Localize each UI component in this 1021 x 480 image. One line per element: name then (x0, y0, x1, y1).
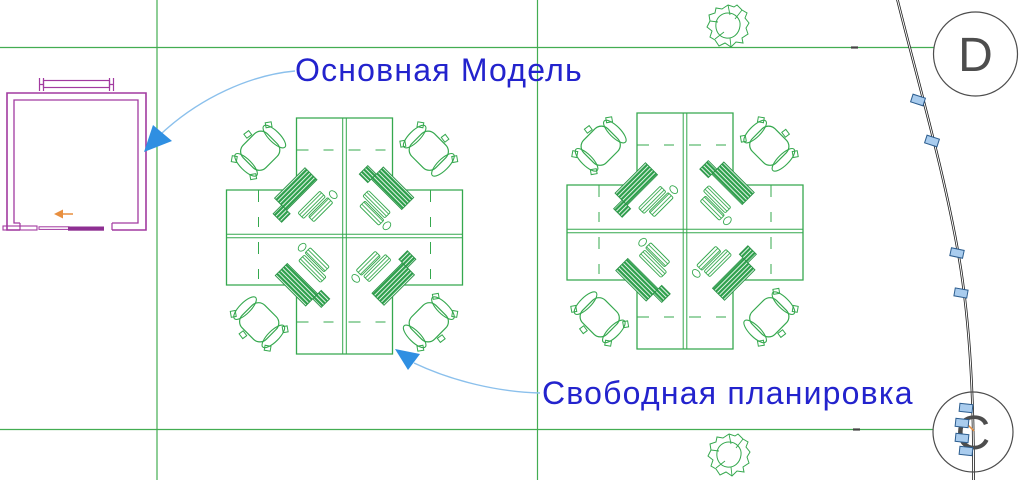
room-outer-wall[interactable] (7, 93, 146, 230)
tree-symbol-top[interactable] (707, 5, 749, 47)
annotation-main-model[interactable]: Основная Модель (295, 52, 583, 88)
leader-arrowhead (144, 125, 172, 152)
leader-line (162, 71, 295, 133)
tree-symbol-bottom[interactable] (708, 434, 750, 476)
leader-line (414, 363, 540, 393)
window-end-left (40, 78, 44, 91)
window-symbol[interactable] (44, 81, 110, 88)
floor-plan-svg: D C Основная Модель Свободная планировка (0, 0, 1021, 480)
door-panel-1[interactable] (39, 227, 69, 230)
window-end-right (110, 78, 114, 91)
leader-arrowhead (395, 349, 420, 370)
door-direction-arrow (54, 210, 73, 219)
grid-bubble-d-label: D (958, 29, 993, 82)
leader-main-model[interactable] (144, 71, 295, 152)
workstation-cluster-left[interactable] (223, 114, 465, 358)
leader-free-plan[interactable] (395, 349, 540, 393)
grid-bubble-d[interactable]: D (934, 12, 1018, 96)
cad-drawing-canvas: D C Основная Модель Свободная планировка (0, 0, 1021, 480)
curve-markers[interactable] (911, 94, 973, 455)
workstation-cluster-right[interactable] (563, 109, 805, 353)
room-inner-wall[interactable] (14, 100, 138, 223)
door-panel-2[interactable] (68, 227, 104, 231)
room-outline[interactable] (3, 78, 146, 231)
annotation-free-plan[interactable]: Свободная планировка (542, 375, 914, 411)
